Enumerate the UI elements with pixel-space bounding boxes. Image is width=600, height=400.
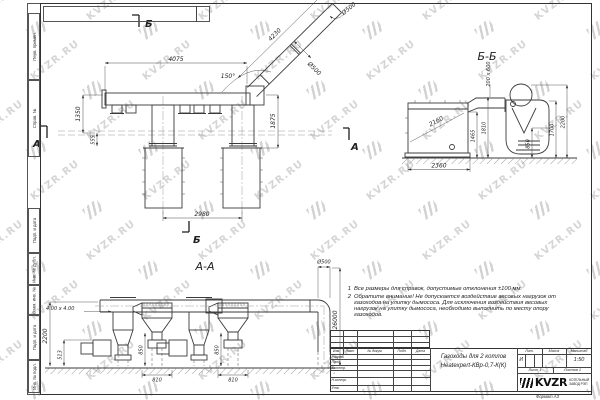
col-header: Лист	[343, 349, 357, 353]
brand-subtitle: КОТЕЛЬНЫЙ ЗАВОД РЭП	[569, 379, 589, 386]
sheets-cell: Листов 1	[553, 368, 592, 372]
col-header: Изм.	[330, 349, 343, 353]
note-number: 2	[346, 294, 351, 318]
corner-stamp-box	[43, 6, 210, 22]
note-item: 1 Все размеры для справок, допустимые от…	[346, 286, 562, 292]
row-label: Утв.	[332, 386, 340, 390]
margin-label: Перв. примен.	[29, 13, 40, 80]
lit-value: И	[517, 357, 525, 363]
note-text: Обратите внимание! Не допускается воздей…	[354, 294, 562, 318]
sheet-cell: Лист 1	[517, 368, 553, 372]
margin-label: Подп. и дата	[29, 208, 40, 253]
document-title-line1: Газоходы для 2 котлов	[430, 353, 517, 362]
brand-name: KVZR	[535, 376, 567, 389]
corner-stamp-divider	[196, 6, 197, 22]
drawing-sheet: KVZR.RUKVZR.RUKVZR.RUKVZR.RUKVZR.RUKVZR.…	[0, 0, 600, 400]
format-label: Формат А3	[536, 394, 559, 399]
kvzr-stripes-icon	[520, 378, 533, 388]
sheet-label: Лист	[529, 368, 539, 372]
note-item: 2 Обратите внимание! Не допускается возд…	[346, 294, 562, 318]
col-header: Подп.	[393, 349, 411, 353]
mass-header: Масса	[542, 349, 566, 353]
scale-header: Масштаб	[566, 349, 592, 353]
sheet-number: 1	[539, 368, 541, 372]
brand-subtitle-line2: ЗАВОД РЭП	[569, 383, 589, 387]
row-label: Разраб.	[332, 355, 345, 359]
notes-block: 1 Все размеры для справок, допустимые от…	[346, 286, 562, 320]
margin-label: Подп. и дата	[29, 315, 40, 360]
document-title-line2: Heatexpert-КВр-0,7-К(К)	[430, 362, 517, 371]
row-label: Н.контр.	[332, 378, 347, 382]
margin-label: Инв. № подл.	[29, 360, 40, 393]
lit-header: Лит.	[517, 349, 542, 353]
company-logo-cell: KVZR КОТЕЛЬНЫЙ ЗАВОД РЭП	[518, 374, 591, 391]
scale-value: 1:50	[566, 357, 592, 363]
row-label: Пров.	[332, 360, 341, 364]
col-header: № докум.	[357, 349, 393, 353]
col-header: Дата	[411, 349, 430, 353]
margin-label: Взам. инв. №	[29, 285, 40, 315]
note-number: 1	[346, 286, 351, 292]
row-label: Т.контр.	[332, 366, 347, 370]
drawing-frame	[40, 3, 592, 395]
margin-label: Инв. № дубл.	[29, 253, 40, 285]
margin-label: Справ. №	[29, 80, 40, 157]
document-title: Газоходы для 2 котлов Heatexpert-КВр-0,7…	[430, 353, 517, 372]
sheets-number: 1	[579, 368, 581, 372]
title-block-extension	[330, 330, 430, 348]
note-text: Все размеры для справок, допустимые откл…	[354, 286, 522, 292]
sheets-label: Листов	[564, 368, 578, 372]
